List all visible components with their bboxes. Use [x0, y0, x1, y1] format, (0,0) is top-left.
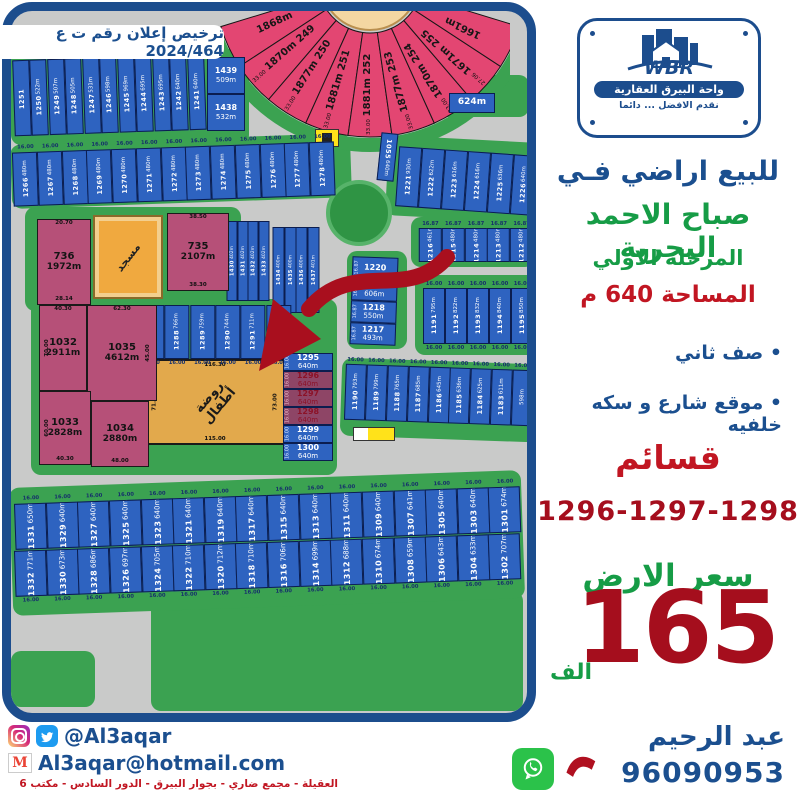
- plot-1325: 1325640m: [109, 499, 142, 546]
- plot-1275: 1275480m: [235, 144, 262, 199]
- feature-bullet-1: • صف ثاني: [552, 342, 782, 364]
- plot-1288: 1288766m: [164, 305, 189, 359]
- plot-1226: 1226640m: [510, 154, 536, 215]
- plot-1317: 1317640m: [236, 495, 269, 542]
- plot-column: 1439509m1438532m: [207, 57, 245, 131]
- plot-1032: 40.3010322911m70.00: [39, 305, 87, 391]
- plot-1331: 1331650m: [14, 503, 47, 550]
- plot-1035: 62.3010354612m45.00: [87, 305, 157, 401]
- company-name: واحة البيرق العقارية: [594, 81, 744, 98]
- plot-1193: 1193832m: [467, 288, 489, 344]
- plot-row: 1266480m1267480m1268480m1269480m1270480m…: [12, 141, 336, 206]
- license-text: ترخيص إعلان رقم ت ع 2024/464: [0, 24, 224, 60]
- plot-1438: 1438532m: [207, 94, 245, 131]
- plot-1303: 1303640m: [457, 487, 490, 534]
- plot-1268: 1268480m: [62, 150, 89, 205]
- logo-corner-dot: [743, 120, 748, 125]
- price-value: 165: [575, 578, 778, 678]
- plot-1320: 1320712m: [204, 543, 237, 590]
- phone-icon: [562, 752, 600, 786]
- plot-1194: 1194840m: [489, 288, 511, 344]
- plot-1302: 1302707m: [488, 533, 521, 580]
- company-tagline: نقدم الافضل ... دائما: [580, 100, 758, 111]
- circular-plots-fan: 1868m1870m 24933.001877m 25033.001881m 2…: [220, 2, 510, 155]
- plot-1299: 16.001299640m: [283, 425, 333, 443]
- dimension-strip: 16.8716.8716.8716.8716.87: [419, 221, 533, 228]
- plot-1266: 1266480m: [12, 152, 39, 207]
- mosque-plot: مسجد: [95, 217, 161, 297]
- office-address: العقيلة - مجمع ضاري - بجوار البيرق - الد…: [8, 778, 338, 790]
- logo-corner-dot: [743, 31, 748, 36]
- green-area: [11, 651, 95, 707]
- plot-1304: 1304633m: [457, 534, 490, 581]
- company-logo: WBR واحة البيرق العقارية نقدم الافضل ...…: [577, 18, 761, 138]
- brand-name: WBR: [580, 57, 758, 79]
- headline: للبيع اراضي فـي: [536, 156, 800, 187]
- red-arrow: [257, 239, 457, 379]
- plot-1269: 1269480m: [86, 149, 113, 204]
- roundabout-circle: [326, 180, 392, 246]
- kindergarten-label: روضة أطفال: [190, 377, 239, 428]
- plot-1311: 1311640m: [330, 492, 363, 539]
- plot-1314: 1314699m: [299, 540, 332, 587]
- plot-1301: 1301674m: [488, 486, 521, 533]
- plot-1327: 1327640m: [78, 501, 111, 548]
- agent-phone[interactable]: 96090953: [621, 756, 785, 789]
- feature-bullet-2: • موقع شارع و سكه خلفيه: [552, 392, 782, 436]
- plot-1326: 1326697m: [109, 546, 142, 593]
- instagram-icon[interactable]: [8, 725, 30, 747]
- real-estate-ad-poster: 1868m1870m 24933.001877m 25033.001881m 2…: [0, 0, 800, 800]
- social-contact-block: @Al3aqar M Al3aqar@hotmail.com العقيلة -…: [8, 724, 348, 790]
- plot-1315: 1315640m: [267, 494, 300, 541]
- plot-1431: 1431402m: [238, 221, 249, 301]
- mosque-label: مسجد: [113, 240, 143, 273]
- plot-1274: 1274480m: [210, 145, 237, 200]
- plot-1306: 1306643m: [425, 535, 458, 582]
- logo-corner-dot: [590, 120, 595, 125]
- plot-1310: 1310674m: [362, 538, 395, 585]
- plot-1332: 1332771m: [14, 550, 47, 597]
- white-strip: [354, 428, 368, 440]
- plot-1289: 1289759m: [190, 305, 215, 359]
- plot-row: 12511250522m1249507m1248505m1247531m1246…: [12, 54, 207, 137]
- plot-numbers: 1296-1297-1298: [536, 496, 800, 527]
- price-unit: الف: [550, 660, 592, 685]
- plot-1271: 1271480m: [136, 147, 163, 202]
- svg-text:1881m 252: 1881m 252: [362, 54, 373, 117]
- plot-1242: 1242640m: [169, 54, 189, 131]
- plot-1330: 1330673m: [46, 549, 79, 596]
- plot-1273: 1273480m: [185, 146, 212, 201]
- plot-1439: 1439509m: [207, 57, 245, 94]
- plot-1290: 1290744m: [215, 305, 240, 359]
- plot-1034: 10342880m48.00: [91, 401, 149, 467]
- plot-1195: 1195850m: [511, 288, 533, 344]
- plot-1212: 1212480m: [510, 228, 533, 262]
- map-card: 1868m1870m 24933.001877m 25033.001881m 2…: [2, 2, 536, 722]
- gmail-icon[interactable]: M: [8, 753, 32, 773]
- plot-598m: 598m: [511, 370, 534, 427]
- svg-text:33.00: 33.00: [366, 119, 372, 135]
- plot-1308: 1308659m: [394, 536, 427, 583]
- plot-1321: 1321640m: [172, 497, 205, 544]
- email-address[interactable]: Al3aqar@hotmail.com: [38, 751, 285, 775]
- plot-1244: 1244695m: [134, 56, 154, 133]
- license-banner: ترخيص إعلان رقم ت ع 2024/464: [0, 25, 224, 59]
- plot-1329: 1329640m: [46, 502, 79, 549]
- plot-row: 1221930m1222622m1223616m1224616m1225636m…: [395, 146, 536, 215]
- plot-1278: 1278480m: [309, 141, 336, 196]
- info-panel: WBR واحة البيرق العقارية نقدم الافضل ...…: [536, 0, 800, 800]
- logo-corner-dot: [590, 31, 595, 36]
- phase-line: المرحلة الاولي: [536, 246, 800, 270]
- plot-1184: 1184625m: [469, 368, 492, 425]
- kg-dim-bottom: 115.00: [147, 436, 283, 442]
- plot-1241: 1241640m: [186, 54, 206, 131]
- plot-624m: 624m: [449, 93, 495, 113]
- plots-word: قسائم: [536, 438, 800, 477]
- plot-1213: 1213480m: [487, 228, 510, 262]
- plot-1297: 16.001297640m: [283, 389, 333, 407]
- plot-735: 38.507352107m38.30: [167, 213, 229, 291]
- plot-1246: 1246598m: [99, 57, 119, 134]
- plot-1307: 1307641m: [394, 489, 427, 536]
- plot-1322: 1322710m: [172, 544, 205, 591]
- kg-dim-right: 73.00: [272, 393, 278, 410]
- agent-name: عبد الرحيم: [648, 722, 785, 752]
- plot-1183: 1183611m: [490, 369, 513, 426]
- plot-1316: 1316706m: [267, 541, 300, 588]
- plot-1276: 1276480m: [260, 143, 287, 198]
- plot-1319: 1319640m: [204, 496, 237, 543]
- twitter-icon[interactable]: [36, 725, 58, 747]
- plot-1323: 1323640m: [141, 498, 174, 545]
- plot-1298: 16.001298640m: [283, 407, 333, 425]
- plot-736: 20.707361972m28.14: [37, 219, 91, 305]
- yellow-strip-marker: [353, 427, 395, 441]
- plot-1300: 16.001300640m: [283, 443, 333, 461]
- plot-1318: 1318710m: [236, 542, 269, 589]
- area-line: المساحة 640 م: [536, 282, 800, 308]
- social-handle[interactable]: @Al3aqar: [64, 724, 171, 748]
- plot-1309: 1309640m: [362, 491, 395, 538]
- plot-1328: 1328686m: [78, 548, 111, 595]
- plot-1313: 1313640m: [299, 493, 332, 540]
- plot-1312: 1312688m: [330, 539, 363, 586]
- plot-1324: 1324705m: [141, 545, 174, 592]
- plot-1214: 1214480m: [465, 228, 488, 262]
- whatsapp-icon[interactable]: [512, 748, 554, 790]
- plot-1033: 10332828m40.3060.00: [39, 391, 91, 465]
- plot-1277: 1277480m: [284, 142, 311, 197]
- plot-1305: 1305640m: [425, 488, 458, 535]
- plot-1272: 1272480m: [161, 147, 188, 202]
- plot-1270: 1270480m: [111, 148, 138, 203]
- plots-map: 1868m1870m 24933.001877m 25033.001881m 2…: [11, 11, 527, 713]
- plot-1267: 1267480m: [37, 151, 64, 206]
